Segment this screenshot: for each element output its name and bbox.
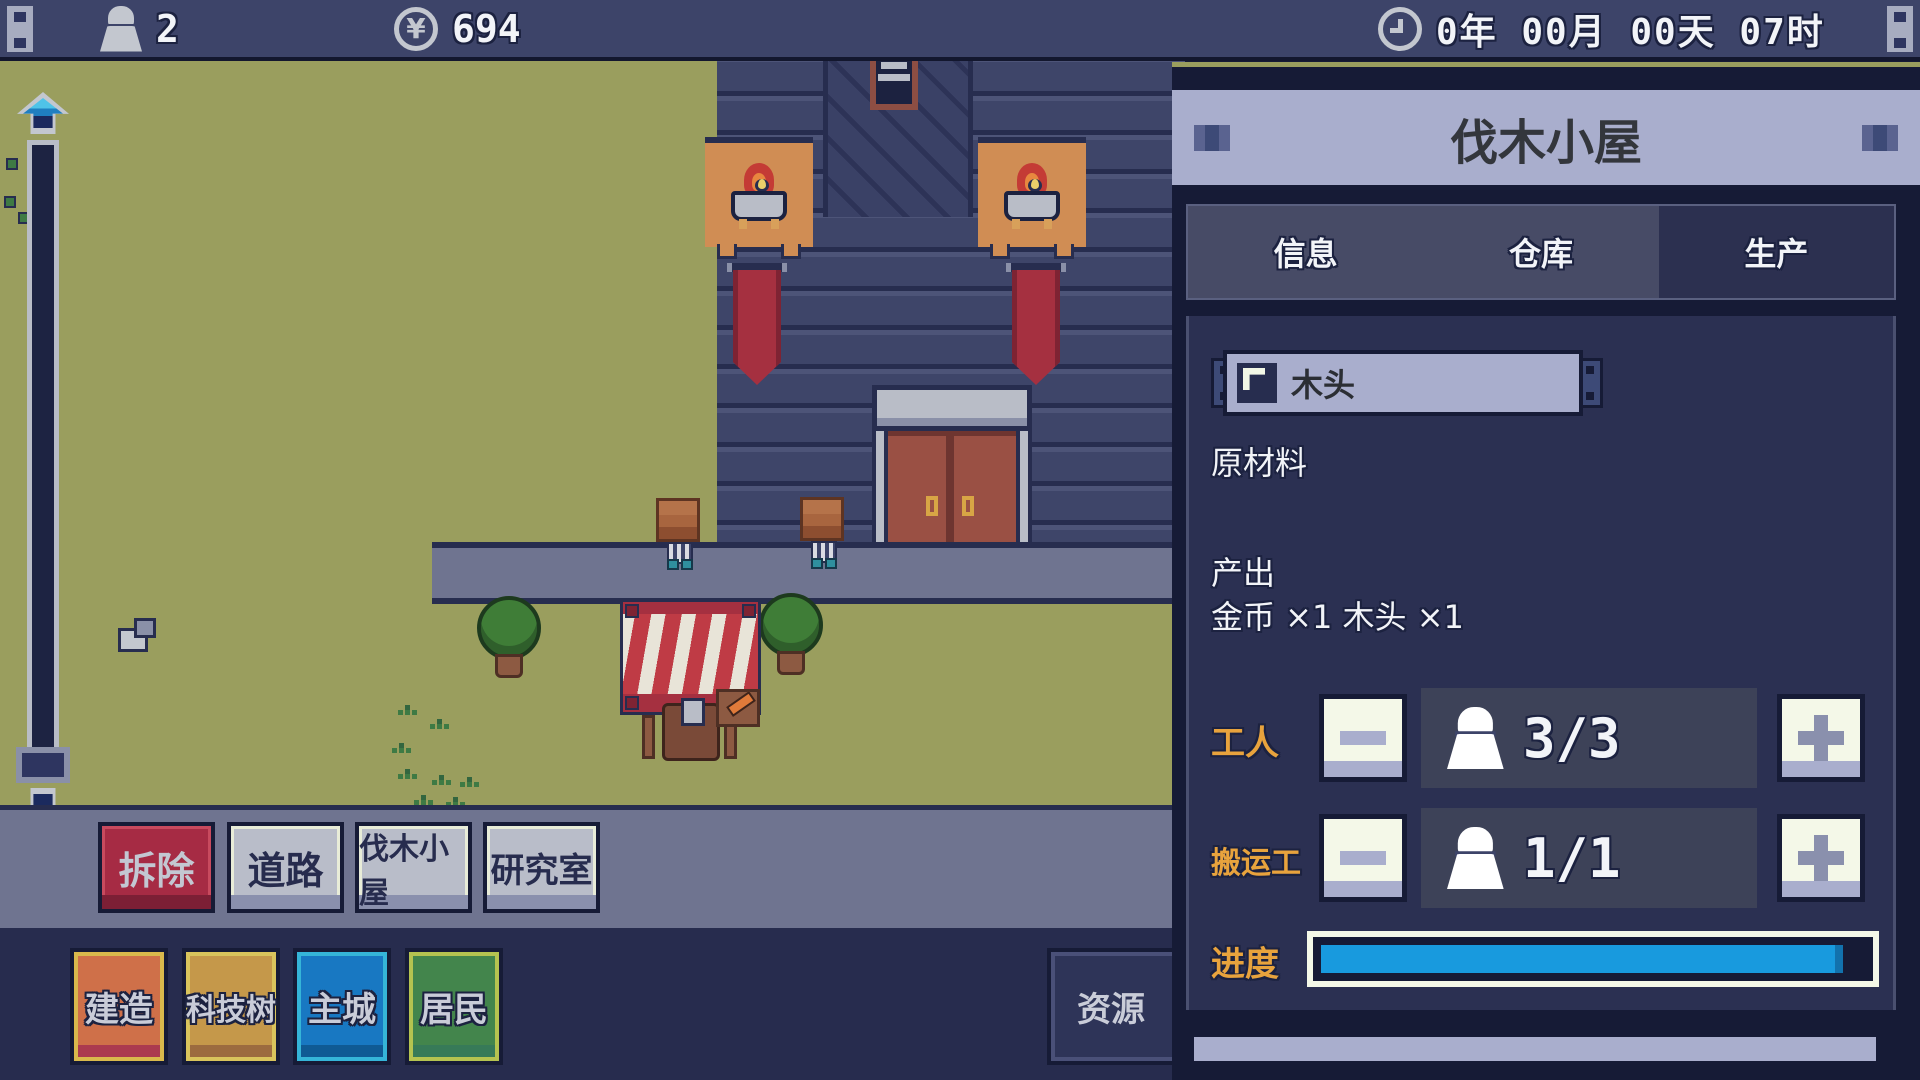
grass-tuft: [392, 748, 397, 753]
wall-banner-left: [705, 137, 813, 247]
panel-title-bar: 伐木小屋: [1172, 90, 1920, 185]
door-handle: [926, 496, 938, 516]
grass-dot: [4, 196, 16, 208]
workers-count: 3/3: [1523, 707, 1621, 770]
tech-tree-button[interactable]: 科技树: [182, 948, 280, 1065]
tab-warehouse[interactable]: 仓库: [1423, 206, 1658, 298]
red-banner: [733, 270, 781, 385]
title-decor-left: [1194, 125, 1230, 151]
castle-window: [870, 57, 918, 110]
output-label: 产出: [1211, 548, 1275, 594]
panel-footer-bar: [1194, 1037, 1876, 1061]
stall-sign: [716, 689, 760, 727]
tab-production[interactable]: 生产: [1659, 206, 1894, 298]
workers-row: 工人 3/3: [1189, 694, 1899, 786]
progress-bar-fill: [1321, 945, 1843, 973]
workers-label: 工人: [1211, 716, 1279, 765]
door-jamb: [872, 431, 888, 543]
grass-tuft: [460, 782, 465, 787]
rock: [118, 618, 158, 652]
research-lab-button[interactable]: 研究室: [483, 822, 600, 913]
porters-row: 搬运工 1/1: [1189, 814, 1899, 906]
money-count: 694: [452, 7, 521, 51]
tab-info[interactable]: 信息: [1188, 206, 1423, 298]
wall-banner-right: [978, 137, 1086, 247]
progress-label: 进度: [1211, 937, 1279, 986]
villager-carrying-crate[interactable]: [656, 498, 702, 566]
title-decor-right: [1862, 125, 1898, 151]
tree: [477, 596, 537, 674]
porters-plus-button[interactable]: [1777, 814, 1865, 902]
villager-carrying-crate[interactable]: [800, 497, 846, 565]
flag-icon: [1237, 363, 1277, 403]
residents-button[interactable]: 居民: [405, 948, 503, 1065]
left-rail-decor: [7, 6, 33, 52]
progress-row: 进度: [1189, 931, 1899, 991]
panel-title: 伐木小屋: [1450, 103, 1642, 173]
road-button[interactable]: 道路: [227, 822, 344, 913]
door-lintel: [872, 385, 1032, 431]
grass-tuft: [430, 724, 435, 729]
grass-dot: [6, 158, 18, 170]
progress-bar: [1307, 931, 1879, 987]
castle-door[interactable]: [888, 431, 1016, 543]
game-screen: 2 ¥ 694 0年 00月 00天 07时 拆除 道路 伐木小屋 研究室 建造…: [0, 0, 1920, 1080]
worker-icon: [1447, 827, 1504, 889]
population-indicator: 2: [100, 0, 179, 57]
output-detail: 金币 ×1 木头 ×1: [1211, 592, 1464, 638]
product-category: 原材料: [1211, 438, 1307, 484]
brazier-icon: [1004, 161, 1060, 233]
logging-cabin-button[interactable]: 伐木小屋: [355, 822, 472, 913]
demolish-button[interactable]: 拆除: [98, 822, 215, 913]
porters-count-box: 1/1: [1421, 808, 1757, 908]
clock-icon: [1378, 7, 1422, 51]
tree: [759, 593, 819, 671]
resources-button[interactable]: 资源: [1047, 948, 1185, 1065]
stall-leg: [642, 715, 655, 759]
build-tab-button[interactable]: 建造: [70, 948, 168, 1065]
game-time: 0年 00月 00天 07时: [1436, 3, 1825, 55]
worker-icon: [100, 6, 142, 52]
red-banner: [1012, 270, 1060, 385]
product-name: 木头: [1291, 360, 1355, 406]
main-menu-bar: [0, 928, 1185, 1080]
product-item-banner[interactable]: 木头: [1223, 350, 1583, 416]
top-status-bar: 2 ¥ 694 0年 00月 00天 07时: [0, 0, 1920, 61]
market-stall[interactable]: [620, 593, 765, 763]
population-count: 2: [156, 7, 179, 51]
door-handle: [962, 496, 974, 516]
main-castle-building[interactable]: [717, 57, 1185, 543]
grass-tuft: [398, 710, 403, 715]
production-tab-content: 木头 原材料 产出 金币 ×1 木头 ×1 工人 3/3 搬运工 1/1: [1186, 316, 1896, 1010]
panel-tabs: 信息 仓库 生产: [1186, 204, 1896, 300]
grass-tuft: [432, 780, 437, 785]
coin-icon: ¥: [394, 7, 438, 51]
right-rail-decor: [1887, 6, 1913, 52]
money-indicator: ¥ 694: [394, 0, 521, 57]
workers-plus-button[interactable]: [1777, 694, 1865, 782]
panel-top-grass-edge: [1172, 62, 1920, 67]
worker-icon: [1447, 707, 1504, 769]
porters-minus-button[interactable]: [1319, 814, 1407, 902]
zoom-slider-handle[interactable]: [16, 747, 70, 783]
stall-table: [662, 703, 720, 761]
brazier-icon: [731, 161, 787, 233]
grass-tuft: [398, 774, 403, 779]
zoom-slider-track[interactable]: [27, 140, 59, 755]
workers-minus-button[interactable]: [1319, 694, 1407, 782]
porters-label: 搬运工: [1211, 838, 1301, 882]
time-indicator: 0年 00月 00天 07时: [1378, 0, 1825, 57]
zoom-in-arrow-button[interactable]: [17, 92, 69, 134]
building-info-panel: 伐木小屋 信息 仓库 生产 木头 原材料 产出 金币 ×1 木头 ×1 工人: [1172, 62, 1920, 1080]
porters-count: 1/1: [1523, 827, 1621, 890]
door-jamb: [1016, 431, 1032, 543]
main-city-button[interactable]: 主城: [293, 948, 391, 1065]
workers-count-box: 3/3: [1421, 688, 1757, 788]
